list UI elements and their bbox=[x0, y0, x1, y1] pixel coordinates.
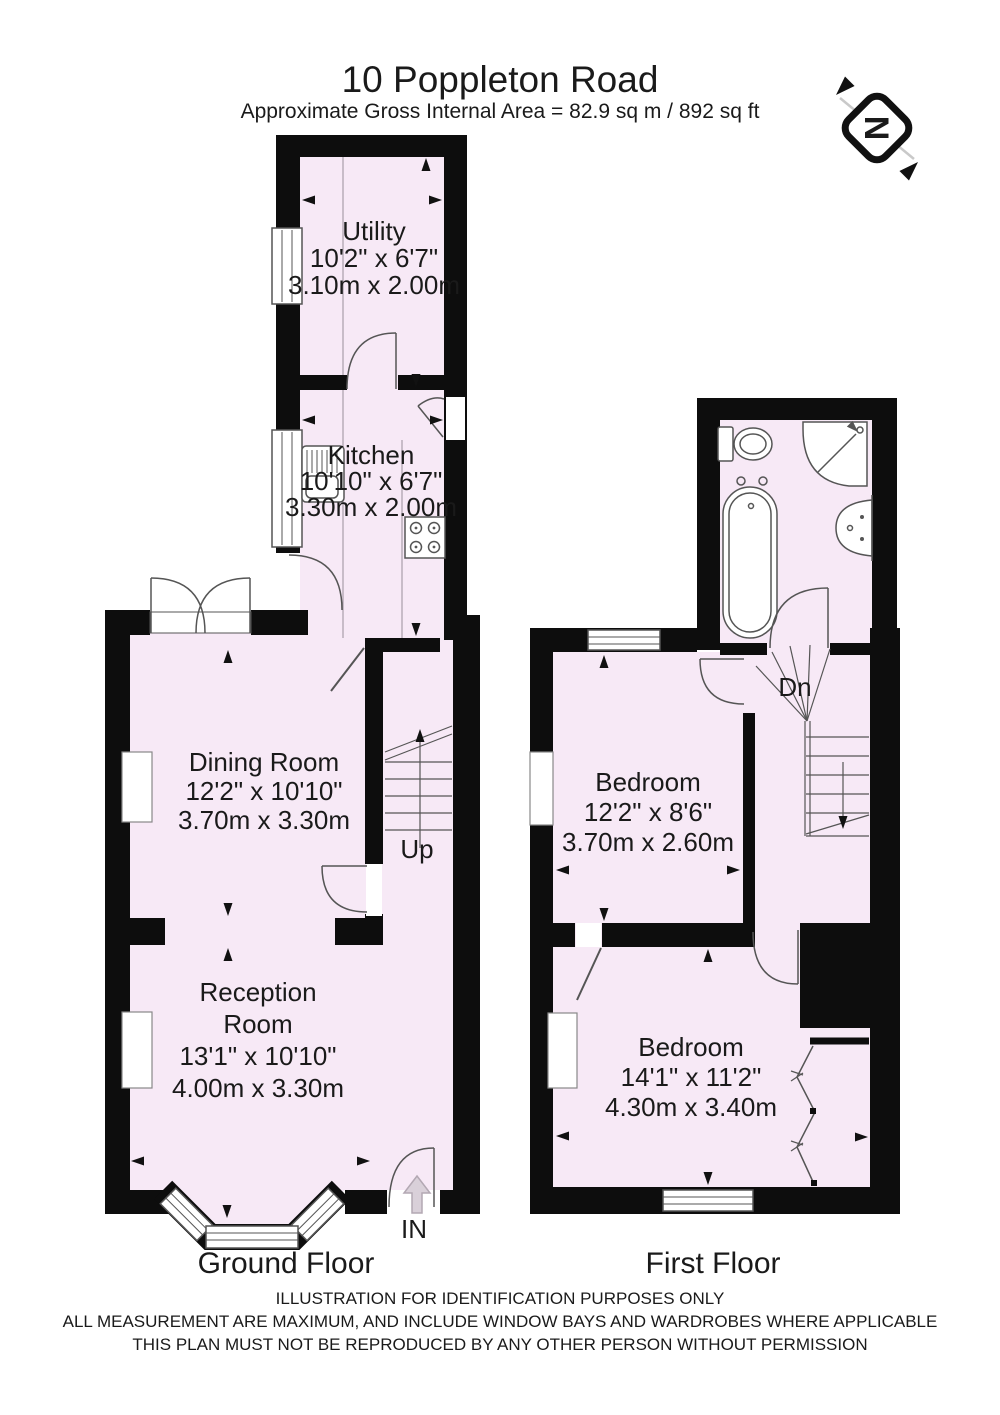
footer-line-2: ALL MEASUREMENT ARE MAXIMUM, AND INCLUDE… bbox=[63, 1312, 938, 1331]
utility-imperial: 10'2" x 6'7" bbox=[310, 243, 438, 273]
ground-floor-plan: Utility 10'2" x 6'7" 3.10m x 2.00m Kitch… bbox=[105, 135, 480, 1280]
bedroom1-label: Bedroom bbox=[595, 767, 701, 797]
first-floor-title: First Floor bbox=[646, 1247, 781, 1280]
reception-imperial: 13'1" x 10'10" bbox=[179, 1041, 336, 1071]
entrance-label: IN bbox=[401, 1214, 427, 1244]
reception-label-2: Room bbox=[223, 1009, 292, 1039]
stairs-down-label: Dn bbox=[778, 672, 811, 702]
bedroom2-window bbox=[663, 1190, 753, 1211]
bedroom2-chimney-breast bbox=[548, 1013, 577, 1088]
dining-label: Dining Room bbox=[189, 747, 339, 777]
bedroom1-chimney-breast bbox=[530, 752, 553, 825]
bedroom1-metric: 3.70m x 2.60m bbox=[562, 827, 734, 857]
bay-front-window bbox=[206, 1226, 298, 1248]
dining-imperial: 12'2" x 10'10" bbox=[185, 776, 342, 806]
stairs-up-label: Up bbox=[400, 834, 433, 864]
bath-icon bbox=[723, 477, 777, 638]
toilet-icon bbox=[718, 427, 772, 461]
bedroom2-metric: 4.30m x 3.40m bbox=[605, 1092, 777, 1122]
footer-line-3: THIS PLAN MUST NOT BE REPRODUCED BY ANY … bbox=[132, 1335, 867, 1354]
dining-metric: 3.70m x 3.30m bbox=[178, 805, 350, 835]
utility-label: Utility bbox=[342, 216, 406, 246]
bedroom1-window bbox=[588, 630, 660, 650]
north-arrow-icon: N bbox=[831, 76, 923, 180]
utility-metric: 3.10m x 2.00m bbox=[288, 270, 460, 300]
bedroom2-imperial: 14'1" x 11'2" bbox=[621, 1062, 762, 1092]
side-door-opening bbox=[446, 397, 465, 440]
first-floor-plan: Bedroom 12'2" x 8'6" 3.70m x 2.60m Bedro… bbox=[530, 398, 900, 1280]
bedroom1-imperial: 12'2" x 8'6" bbox=[584, 797, 712, 827]
kitchen-metric: 3.30m x 2.00m bbox=[285, 492, 457, 522]
reception-chimney-breast bbox=[122, 1012, 152, 1088]
page-subtitle: Approximate Gross Internal Area = 82.9 s… bbox=[241, 100, 760, 123]
floorplan-page: 10 Poppleton Road Approximate Gross Inte… bbox=[0, 0, 1000, 1415]
dining-chimney-breast bbox=[122, 752, 152, 822]
kitchen-window bbox=[272, 430, 302, 547]
page-title: 10 Poppleton Road bbox=[342, 59, 659, 100]
french-door-opening bbox=[150, 612, 251, 633]
footer-line-1: ILLUSTRATION FOR IDENTIFICATION PURPOSES… bbox=[276, 1289, 725, 1308]
reception-metric: 4.00m x 3.30m bbox=[172, 1073, 344, 1103]
reception-label-1: Reception bbox=[199, 977, 316, 1007]
bedroom2-door-opening bbox=[576, 923, 601, 947]
compass-letter: N bbox=[857, 116, 895, 141]
ground-floor-title: Ground Floor bbox=[198, 1247, 375, 1280]
hob-icon bbox=[405, 517, 445, 558]
floorplan-canvas: 10 Poppleton Road Approximate Gross Inte… bbox=[0, 0, 1000, 1415]
bedroom2-label: Bedroom bbox=[638, 1032, 744, 1062]
